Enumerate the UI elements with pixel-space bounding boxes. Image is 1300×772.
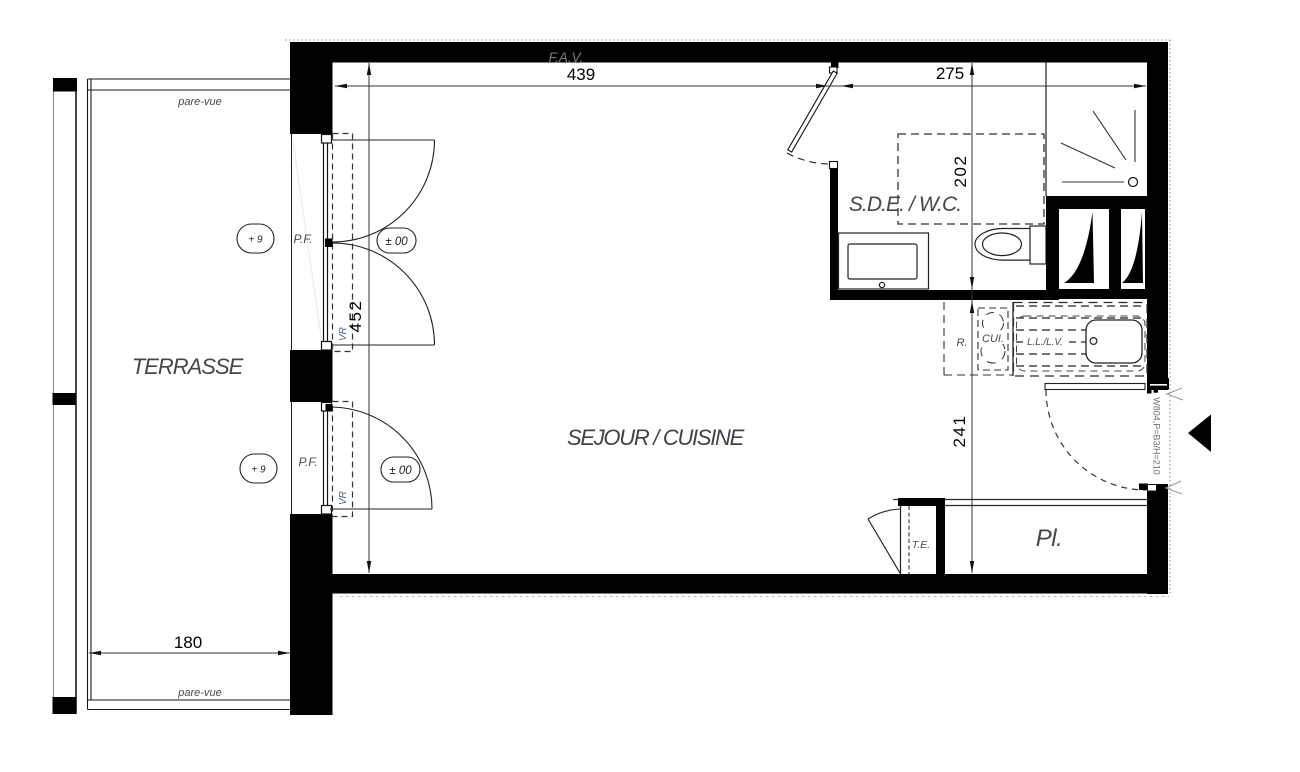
svg-text:VR: VR (338, 491, 349, 505)
svg-text:F.A.V.: F.A.V. (549, 50, 584, 65)
svg-text:pare-vue: pare-vue (177, 96, 221, 108)
svg-text:P.F.: P.F. (294, 232, 313, 246)
svg-text:CUI.: CUI. (982, 333, 1004, 345)
svg-text:439: 439 (567, 65, 595, 84)
svg-text:R.: R. (957, 337, 968, 349)
svg-text:± 00: ± 00 (389, 465, 412, 477)
svg-text:± 00: ± 00 (385, 236, 408, 248)
svg-text:S.D.E. / W.C.: S.D.E. / W.C. (849, 193, 961, 216)
svg-text:275: 275 (936, 64, 964, 83)
svg-text:L.L./L.V.: L.L./L.V. (1027, 337, 1063, 348)
svg-text:TERRASSE: TERRASSE (132, 354, 244, 379)
svg-text:T.E.: T.E. (912, 539, 930, 551)
svg-text:W804,P=B3/H=210: W804,P=B3/H=210 (1152, 397, 1162, 475)
svg-text:Pl.: Pl. (1036, 525, 1063, 552)
svg-text:452: 452 (346, 300, 365, 333)
svg-text:+ 9: + 9 (248, 235, 263, 246)
svg-text:pare-vue: pare-vue (177, 687, 221, 699)
svg-text:180: 180 (174, 633, 202, 652)
svg-text:SEJOUR / CUISINE: SEJOUR / CUISINE (567, 425, 745, 450)
svg-text:241: 241 (950, 415, 969, 448)
svg-text:+ 9: + 9 (251, 465, 266, 476)
svg-text:202: 202 (951, 155, 970, 188)
svg-text:P.F.: P.F. (299, 455, 318, 469)
